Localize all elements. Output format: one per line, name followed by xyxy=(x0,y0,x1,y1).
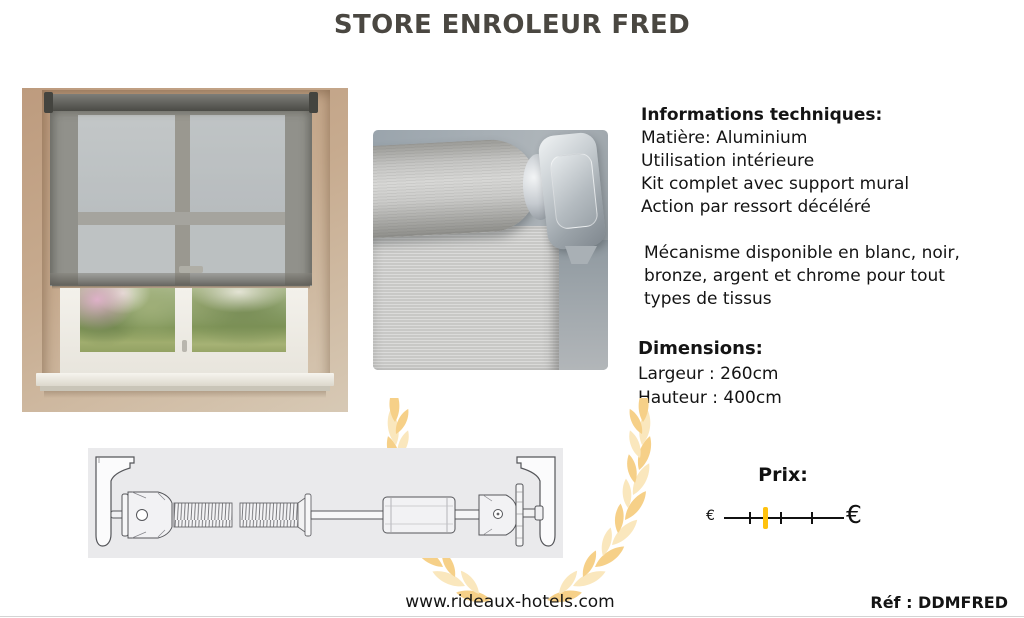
price-label: Prix: xyxy=(700,464,866,486)
dimensions-heading: Dimensions: xyxy=(638,336,782,362)
euro-max-symbol: € xyxy=(846,500,862,529)
window-handle xyxy=(182,340,187,352)
technical-info-block: Informations techniques: Matière: Alumin… xyxy=(641,104,909,219)
product-reference: Réf : DDMFRED xyxy=(870,593,1008,612)
chrome-end-bracket-plate xyxy=(549,152,599,230)
price-scale-tick xyxy=(749,512,751,524)
garden-view-left-pane xyxy=(80,288,175,352)
page-bottom-edge xyxy=(0,616,1024,617)
info-line-usage: Utilisation intérieure xyxy=(641,150,909,173)
roller-tube-endcap-right xyxy=(309,92,318,113)
hanging-fabric xyxy=(373,226,559,370)
mechanism-closeup-photo xyxy=(373,130,608,370)
price-indicator: Prix: € € xyxy=(700,464,878,536)
price-level-marker xyxy=(763,507,768,529)
fabric-roll xyxy=(373,137,539,238)
roller-blind-hem-bar xyxy=(50,273,312,285)
euro-min-symbol: € xyxy=(706,508,715,524)
price-scale-line xyxy=(724,517,844,519)
roller-tube-endcap-left xyxy=(44,92,53,113)
window-blind-photo xyxy=(22,88,348,412)
window-sill xyxy=(36,373,334,386)
page-title: STORE ENROLEUR FRED xyxy=(0,10,1024,40)
garden-view-right-pane xyxy=(192,288,286,352)
mechanism-technical-drawing xyxy=(88,448,563,558)
roller-blind-fabric xyxy=(50,108,312,285)
roller-blind-tube xyxy=(46,94,316,111)
technical-info-heading: Informations techniques: xyxy=(641,104,909,127)
product-sheet-page: STORE ENROLEUR FRED Info xyxy=(0,0,1024,618)
window-sill-shadow xyxy=(44,391,326,398)
website-url: www.rideaux-hotels.com xyxy=(385,592,635,612)
price-scale-tick xyxy=(811,512,813,524)
info-line-material: Matière: Aluminium xyxy=(641,127,909,150)
price-scale-tick xyxy=(780,512,782,524)
info-line-action: Action par ressort décéléré xyxy=(641,196,909,219)
mechanism-availability-paragraph: Mécanisme disponible en blanc, noir, bro… xyxy=(644,242,984,311)
dimension-width: Largeur : 260cm xyxy=(638,362,782,386)
price-scale: € € xyxy=(700,498,878,536)
info-line-kit: Kit complet avec support mural xyxy=(641,173,909,196)
